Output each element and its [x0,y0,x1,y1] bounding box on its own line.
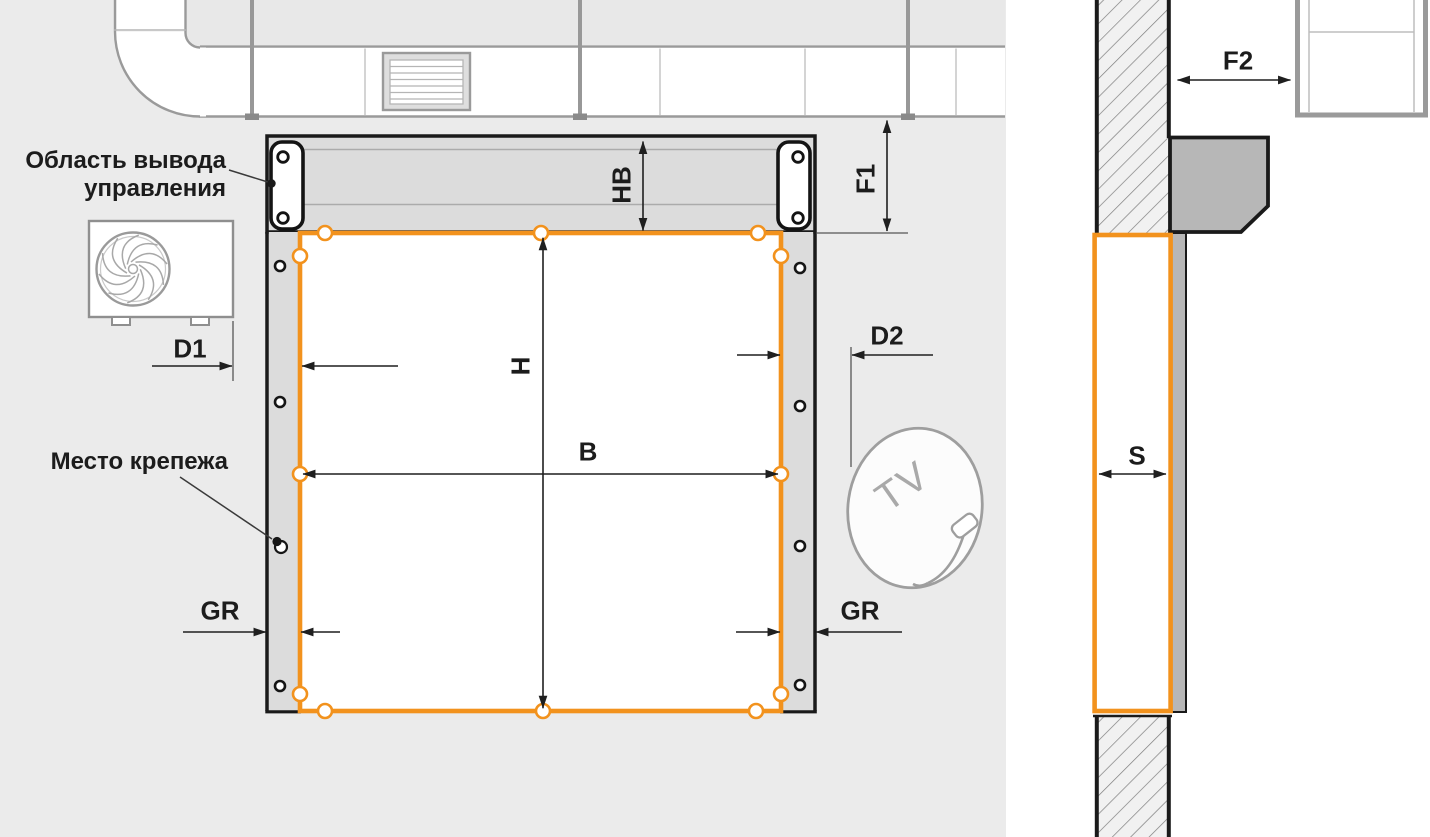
duct-section-box [1298,0,1426,115]
bracket-right-hole-top [793,152,804,163]
diagram-stage: Область вывода управления Место крепежа … [0,0,1430,837]
control-area-label-line1: Область вывода [20,147,226,175]
dim-label-f2: F2 [1223,46,1253,77]
snap [749,704,763,718]
snap [534,226,548,240]
snap [751,226,765,240]
hole [795,541,805,551]
front-duct-body [200,48,1005,117]
satellite-dish [838,419,993,596]
bracket-left-hole-bottom [278,213,289,224]
screen-frame-orange [300,233,781,711]
control-area-label-line2: управления [20,175,226,203]
dim-label-f1: F1 [851,164,882,194]
screen-profile-orange [1095,235,1171,711]
fastener-dot [272,537,281,546]
dim-label-d2: D2 [870,321,903,352]
ac-outdoor-unit [89,221,233,325]
vertical-duct [117,0,185,31]
leader-mounting [180,477,272,539]
leader-control-area-dot [267,179,275,187]
dim-label-h: H [506,357,537,376]
rod-foot-1 [245,114,259,121]
bracket-left-hole-top [278,152,289,163]
housing-section [1170,138,1268,233]
dim-label-d1: D1 [173,334,206,365]
rod-foot-3 [901,114,915,121]
snap [318,226,332,240]
rod-foot-2 [573,114,587,121]
snap [318,704,332,718]
bracket-right-hole-bottom [793,213,804,224]
rear-duct-band [186,0,1005,46]
wall-upper-hatch [1095,0,1170,234]
hole [275,397,285,407]
snap [774,687,788,701]
hole [795,680,805,690]
hole [275,261,285,271]
snap [293,249,307,263]
screen-assembly [265,136,817,718]
diagram-scene [0,0,1430,837]
dim-label-gr-right: GR [841,596,880,627]
dish-reflector [838,419,993,596]
snap [774,249,788,263]
mounting-label: Место крепежа [24,448,228,476]
snap [293,687,307,701]
section-view [1093,0,1426,837]
ac-foot-right [191,317,209,325]
header-box [267,136,815,232]
hole [795,263,805,273]
ac-fan-hub [129,265,138,274]
leader-control-area [229,170,271,183]
ac-foot-left [112,317,130,325]
hole [275,681,285,691]
air-duct-run [114,0,1005,120]
dim-label-hb: HB [607,166,638,204]
dim-label-s: S [1128,441,1145,472]
dim-label-b: B [579,437,598,468]
hole [795,401,805,411]
control-area-label: Область вывода управления [20,147,226,203]
wall-lower-hatch [1095,716,1170,837]
duct-grille [383,53,470,110]
dim-label-gr-left: GR [201,596,240,627]
